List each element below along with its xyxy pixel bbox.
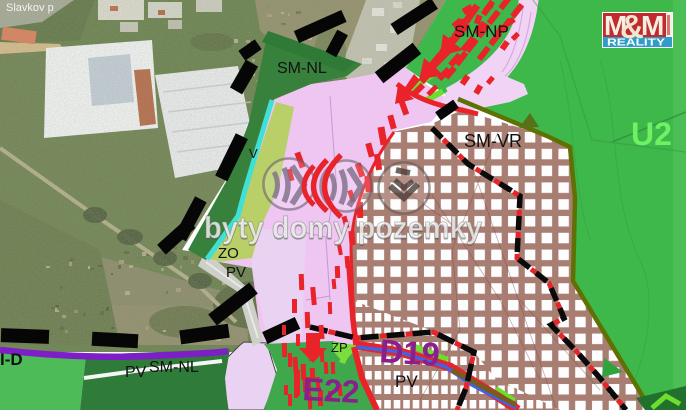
svg-text:ZO: ZO bbox=[218, 245, 239, 262]
svg-text:U2: U2 bbox=[631, 116, 672, 152]
svg-text:D19: D19 bbox=[379, 332, 441, 373]
svg-text:SM-NP: SM-NP bbox=[454, 22, 509, 41]
svg-text:SM-NL: SM-NL bbox=[149, 359, 199, 376]
svg-text:SM-VR: SM-VR bbox=[464, 131, 522, 151]
svg-text:PV: PV bbox=[125, 364, 147, 381]
svg-text:SM-NL: SM-NL bbox=[277, 60, 327, 77]
svg-text:ZP: ZP bbox=[331, 340, 348, 355]
svg-text:V: V bbox=[249, 146, 258, 161]
svg-text:PV: PV bbox=[226, 264, 246, 281]
svg-text:byty domy pozemky: byty domy pozemky bbox=[204, 210, 483, 245]
svg-text:E22: E22 bbox=[302, 371, 361, 410]
svg-text:REALITY: REALITY bbox=[607, 37, 665, 49]
svg-text:PV: PV bbox=[395, 372, 418, 391]
svg-text:Slavkov p: Slavkov p bbox=[6, 2, 54, 14]
svg-text:I-D: I-D bbox=[0, 350, 23, 369]
